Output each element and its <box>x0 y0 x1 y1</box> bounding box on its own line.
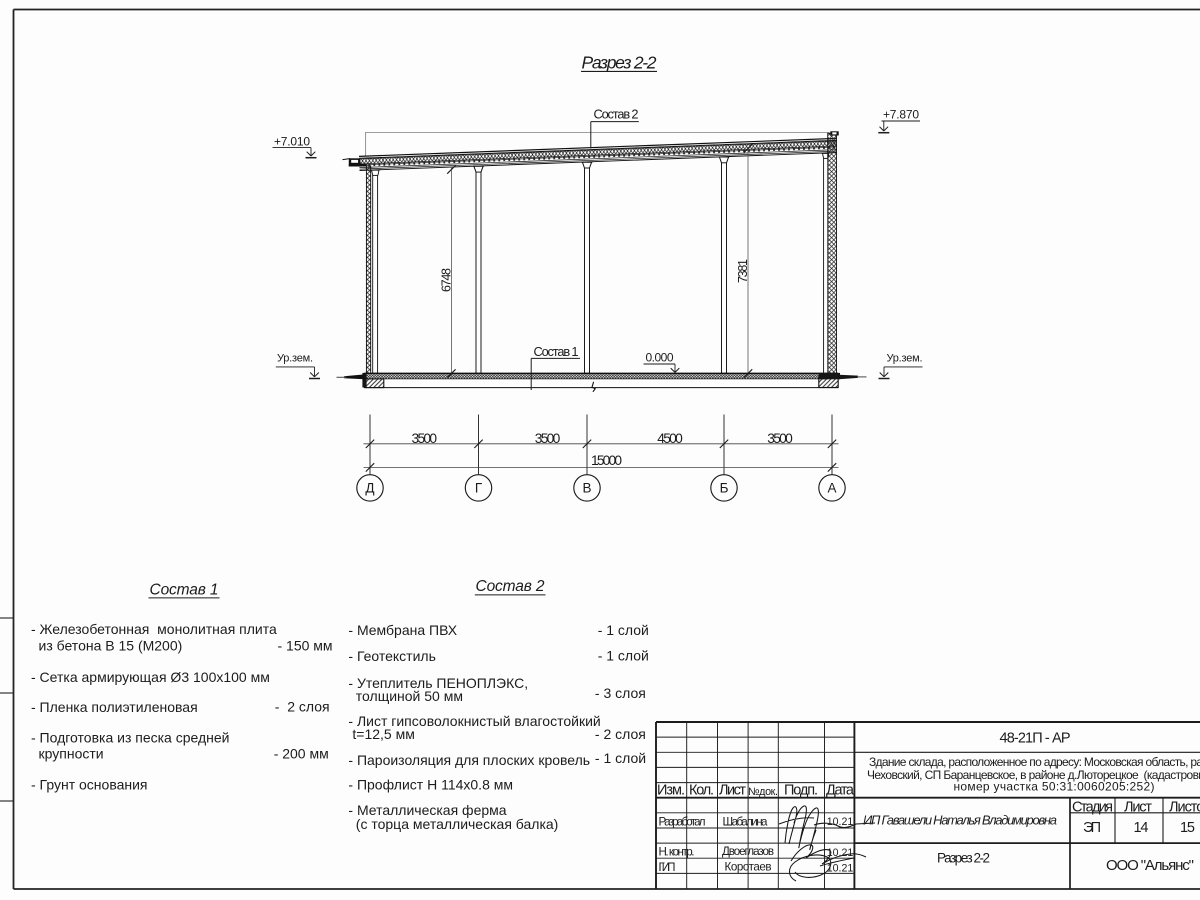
svg-text:Состав 2: Состав 2 <box>476 578 545 595</box>
svg-text:- Профлист Н 114x0.8 мм: - Профлист Н 114x0.8 мм <box>348 777 513 793</box>
svg-text:4500: 4500 <box>657 431 683 446</box>
svg-text:- 2 слоя: - 2 слоя <box>275 699 330 715</box>
svg-text:ООО "Альянс": ООО "Альянс" <box>1106 857 1194 874</box>
svg-text:t=12,5 мм: t=12,5 мм <box>352 726 414 742</box>
svg-text:- 150 мм: - 150 мм <box>278 638 333 654</box>
svg-text:А: А <box>827 481 836 496</box>
svg-text:ЭП: ЭП <box>1083 820 1101 836</box>
svg-text:Состав 1: Состав 1 <box>150 581 219 598</box>
svg-text:Ур.зем.: Ур.зем. <box>887 353 923 365</box>
svg-text:Подп.: Подп. <box>784 783 818 799</box>
svg-text:- Железобетонная монолитная п: - Железобетонная монолитная плита <box>31 621 277 637</box>
svg-text:Н. контр.: Н. контр. <box>659 845 695 858</box>
svg-text:- 200 мм: - 200 мм <box>274 745 329 761</box>
svg-text:Кол.: Кол. <box>689 783 714 799</box>
svg-text:10.21: 10.21 <box>827 816 854 828</box>
svg-text:из бетона В 15 (М200): из бетона В 15 (М200) <box>39 638 183 654</box>
svg-text:3500: 3500 <box>767 431 793 446</box>
svg-text:Шабалина: Шабалина <box>723 815 769 828</box>
svg-text:Состав 1: Состав 1 <box>534 344 579 359</box>
svg-text:Здание склада, расположенное п: Здание склада, расположенное по адресу: … <box>869 755 1200 769</box>
svg-text:0.000: 0.000 <box>646 351 674 365</box>
svg-text:Коротаев: Коротаев <box>725 861 772 874</box>
svg-text:- Геотекстиль: - Геотекстиль <box>348 648 435 664</box>
svg-text:- Грунт основания: - Грунт основания <box>31 776 148 792</box>
svg-text:Разрез 2-2: Разрез 2-2 <box>582 53 657 73</box>
svg-text:Состав 2: Состав 2 <box>594 107 639 122</box>
svg-text:15: 15 <box>1180 820 1195 836</box>
svg-text:Д: Д <box>365 481 374 496</box>
svg-text:3500: 3500 <box>535 431 561 446</box>
svg-text:3500: 3500 <box>412 431 438 446</box>
svg-text:+7.870: +7.870 <box>883 108 919 122</box>
svg-text:15000: 15000 <box>591 453 622 468</box>
svg-text:- 3 слоя: - 3 слоя <box>595 685 646 701</box>
svg-text:ИП Гавашели Наталья Владимиров: ИП Гавашели Наталья Владимировна <box>863 812 1057 827</box>
svg-text:толщиной 50 мм: толщиной 50 мм <box>356 688 463 704</box>
svg-text:Б: Б <box>720 481 729 496</box>
svg-text:- Мембрана ПВХ: - Мембрана ПВХ <box>348 622 457 638</box>
svg-text:Листов: Листов <box>1169 800 1200 816</box>
svg-text:Разработал: Разработал <box>659 816 706 829</box>
svg-text:крупности: крупности <box>39 745 104 761</box>
svg-text:Двоеглазов: Двоеглазов <box>722 845 774 858</box>
svg-text:- Пленка полиэтиленовая: - Пленка полиэтиленовая <box>31 699 198 715</box>
svg-text:Лист: Лист <box>1124 800 1152 816</box>
svg-text:- 1 слой: - 1 слой <box>598 622 649 638</box>
svg-text:(с торца металлическая балка): (с торца металлическая балка) <box>356 816 559 832</box>
svg-text:Дата: Дата <box>826 783 855 799</box>
svg-text:48-21П - АР: 48-21П - АР <box>1000 730 1071 746</box>
svg-text:Г: Г <box>475 481 483 496</box>
svg-text:Лист: Лист <box>719 783 746 799</box>
svg-text:Стадия: Стадия <box>1072 800 1113 816</box>
svg-text:Изм.: Изм. <box>657 783 685 799</box>
svg-text:- Пароизоляция для плоских кро: - Пароизоляция для плоских кровель <box>348 752 590 768</box>
svg-text:номер участка 50:31:0060205:25: номер участка 50:31:0060205:252) <box>954 780 1155 794</box>
svg-text:- Подготовка из песка средней: - Подготовка из песка средней <box>31 729 230 745</box>
svg-text:№док.: №док. <box>748 786 778 798</box>
svg-text:В: В <box>582 481 591 496</box>
svg-text:7381: 7381 <box>736 259 750 283</box>
svg-text:6748: 6748 <box>440 268 454 292</box>
svg-text:Ур.зем.: Ур.зем. <box>277 353 313 365</box>
svg-text:ГИП: ГИП <box>659 861 676 874</box>
svg-text:- Сетка армирующая Ø3 100x100: - Сетка армирующая Ø3 100x100 мм <box>31 669 270 685</box>
svg-text:Разрез 2-2: Разрез 2-2 <box>937 851 990 866</box>
svg-text:- 1 слой: - 1 слой <box>595 750 646 766</box>
svg-text:- 2 слоя: - 2 слоя <box>595 726 646 742</box>
svg-text:14: 14 <box>1134 820 1149 836</box>
svg-text:+7.010: +7.010 <box>274 134 310 148</box>
svg-text:- 1 слой: - 1 слой <box>598 648 649 664</box>
